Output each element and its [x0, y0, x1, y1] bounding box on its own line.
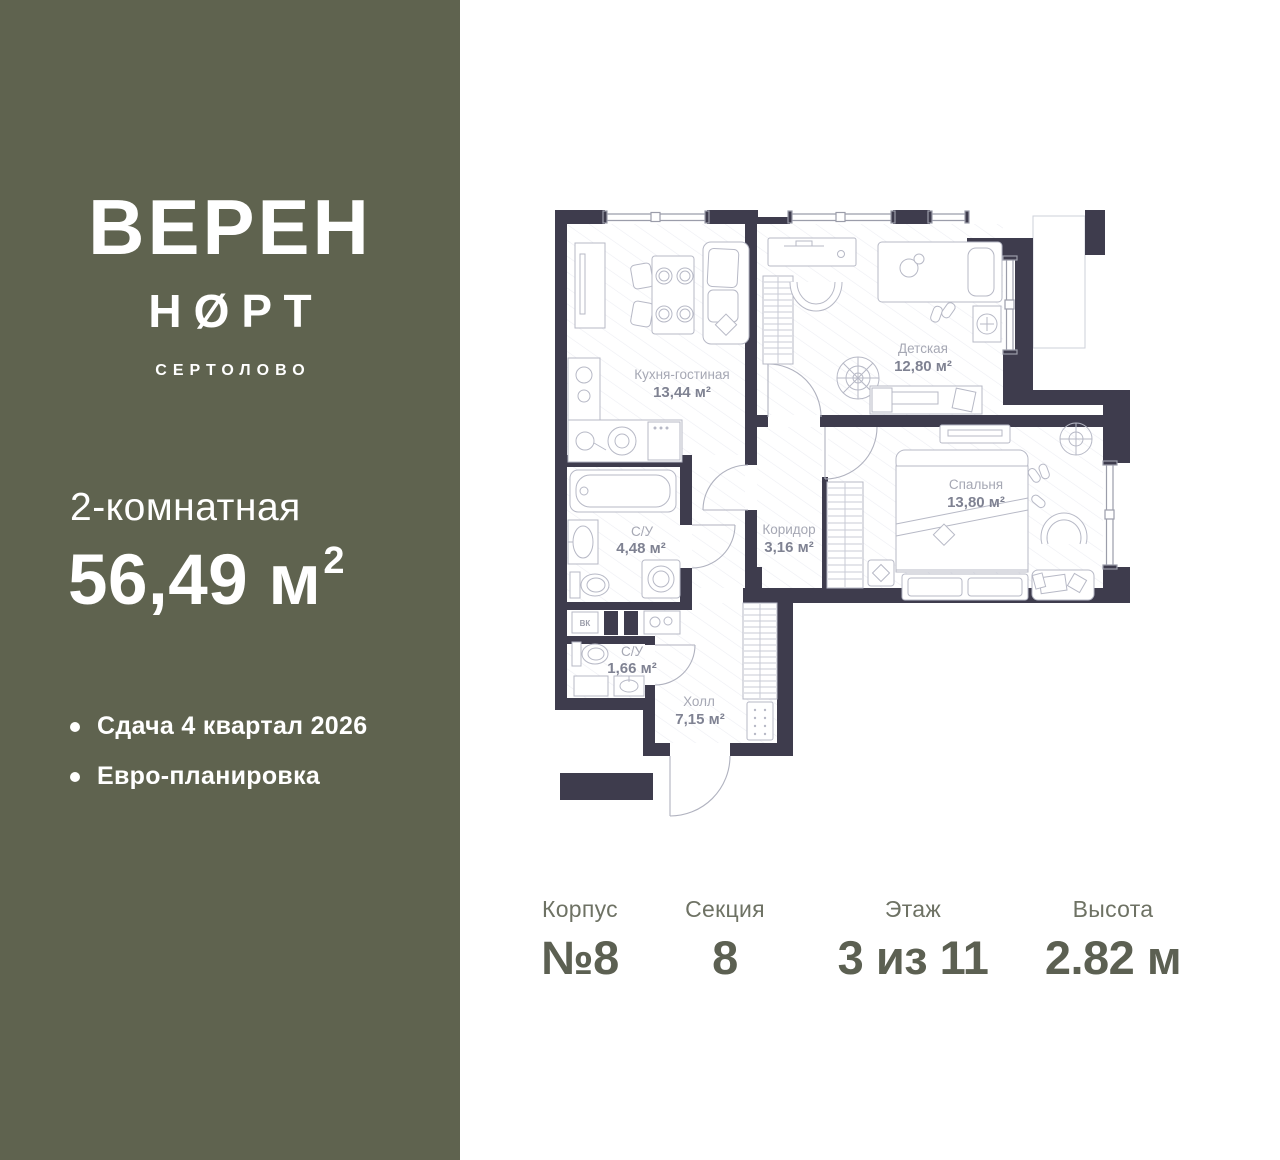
chair — [630, 262, 654, 289]
bullet-icon — [70, 722, 80, 732]
children-window-1 — [788, 211, 895, 223]
fridge — [648, 422, 680, 460]
room-label-hall: Холл — [683, 694, 715, 709]
feature-list: Сдача 4 квартал 2026 Евро-планировка — [70, 712, 367, 812]
dining-table — [652, 256, 694, 334]
detail-building-value: №8 — [541, 930, 619, 985]
room-area-wc: 1,66 м² — [607, 660, 656, 677]
room-area-bathroom: 4,48 м² — [616, 540, 665, 557]
brand-name-line2: НØРТ — [0, 288, 460, 334]
room-area-hall: 7,15 м² — [675, 711, 724, 728]
detail-height-value: 2.82 м — [1045, 930, 1181, 985]
room-label-corridor: Коридор — [762, 522, 815, 537]
room-area-kitchen: 13,44 м² — [653, 384, 711, 401]
pan — [576, 432, 594, 450]
detail-section-label: Секция — [685, 896, 765, 923]
room-area-corridor: 3,16 м² — [764, 539, 813, 556]
detail-floor-label: Этаж — [838, 896, 989, 923]
bedroom-window — [1103, 461, 1117, 569]
pillow — [968, 248, 994, 296]
toilet-tank — [572, 642, 581, 666]
shoe-cabinet — [747, 702, 773, 740]
brand-name-line1: ВЕРЕН — [0, 188, 460, 266]
tv — [948, 430, 1002, 436]
hall-furniture — [743, 603, 777, 740]
listing-page: ВЕРЕН НØРТ СЕРТОЛОВО 2-комнатная 56,49 м… — [0, 0, 1280, 1160]
detail-section-value: 8 — [685, 930, 765, 985]
balcony-outline — [1033, 216, 1085, 348]
apartment-type: 2-комнатная — [70, 486, 301, 530]
cabinet — [574, 676, 608, 696]
detail-building: Корпус №8 — [541, 896, 619, 985]
apartment-area-sup: 2 — [323, 540, 345, 582]
tv — [580, 254, 585, 314]
room-area-children: 12,80 м² — [894, 358, 952, 375]
detail-floor: Этаж 3 из 11 — [838, 896, 989, 985]
feature-item: Евро-планировка — [70, 762, 367, 791]
room-label-kitchen: Кухня-гостиная — [634, 367, 730, 382]
shelf — [644, 611, 680, 634]
room-label-wc: С/У — [621, 644, 644, 659]
apartment-area: 56,49 м2 — [68, 540, 343, 621]
sidebar: ВЕРЕН НØРТ СЕРТОЛОВО 2-комнатная 56,49 м… — [0, 0, 460, 1160]
feature-layout: Евро-планировка — [97, 762, 320, 791]
bullet-icon — [70, 772, 80, 782]
detail-height-label: Высота — [1045, 896, 1181, 923]
entrance-door — [670, 756, 730, 816]
brand-location: СЕРТОЛОВО — [0, 362, 460, 380]
children-window-2 — [928, 211, 969, 223]
feature-delivery: Сдача 4 квартал 2026 — [97, 712, 367, 741]
detail-building-label: Корпус — [541, 896, 619, 923]
room-label-children: Детская — [898, 341, 948, 356]
vk-label: ВК — [580, 619, 591, 628]
detail-height: Высота 2.82 м — [1045, 896, 1181, 985]
children-side-window — [1003, 256, 1017, 354]
room-area-bedroom: 13,80 м² — [947, 494, 1005, 511]
floor-plan: ВК — [540, 190, 1160, 830]
ceiling-light — [1060, 423, 1092, 455]
room-label-bedroom: Спальня — [949, 477, 1003, 492]
detail-section: Секция 8 — [685, 896, 765, 985]
chair — [630, 300, 654, 327]
feature-item: Сдача 4 квартал 2026 — [70, 712, 367, 741]
kitchen-window — [603, 211, 709, 223]
apartment-area-value: 56,49 м — [68, 541, 321, 620]
room-label-bathroom: С/У — [631, 524, 654, 539]
detail-floor-value: 3 из 11 — [838, 930, 989, 985]
toilet-tank — [570, 572, 580, 598]
brand-logo: ВЕРЕН НØРТ СЕРТОЛОВО — [0, 188, 460, 380]
